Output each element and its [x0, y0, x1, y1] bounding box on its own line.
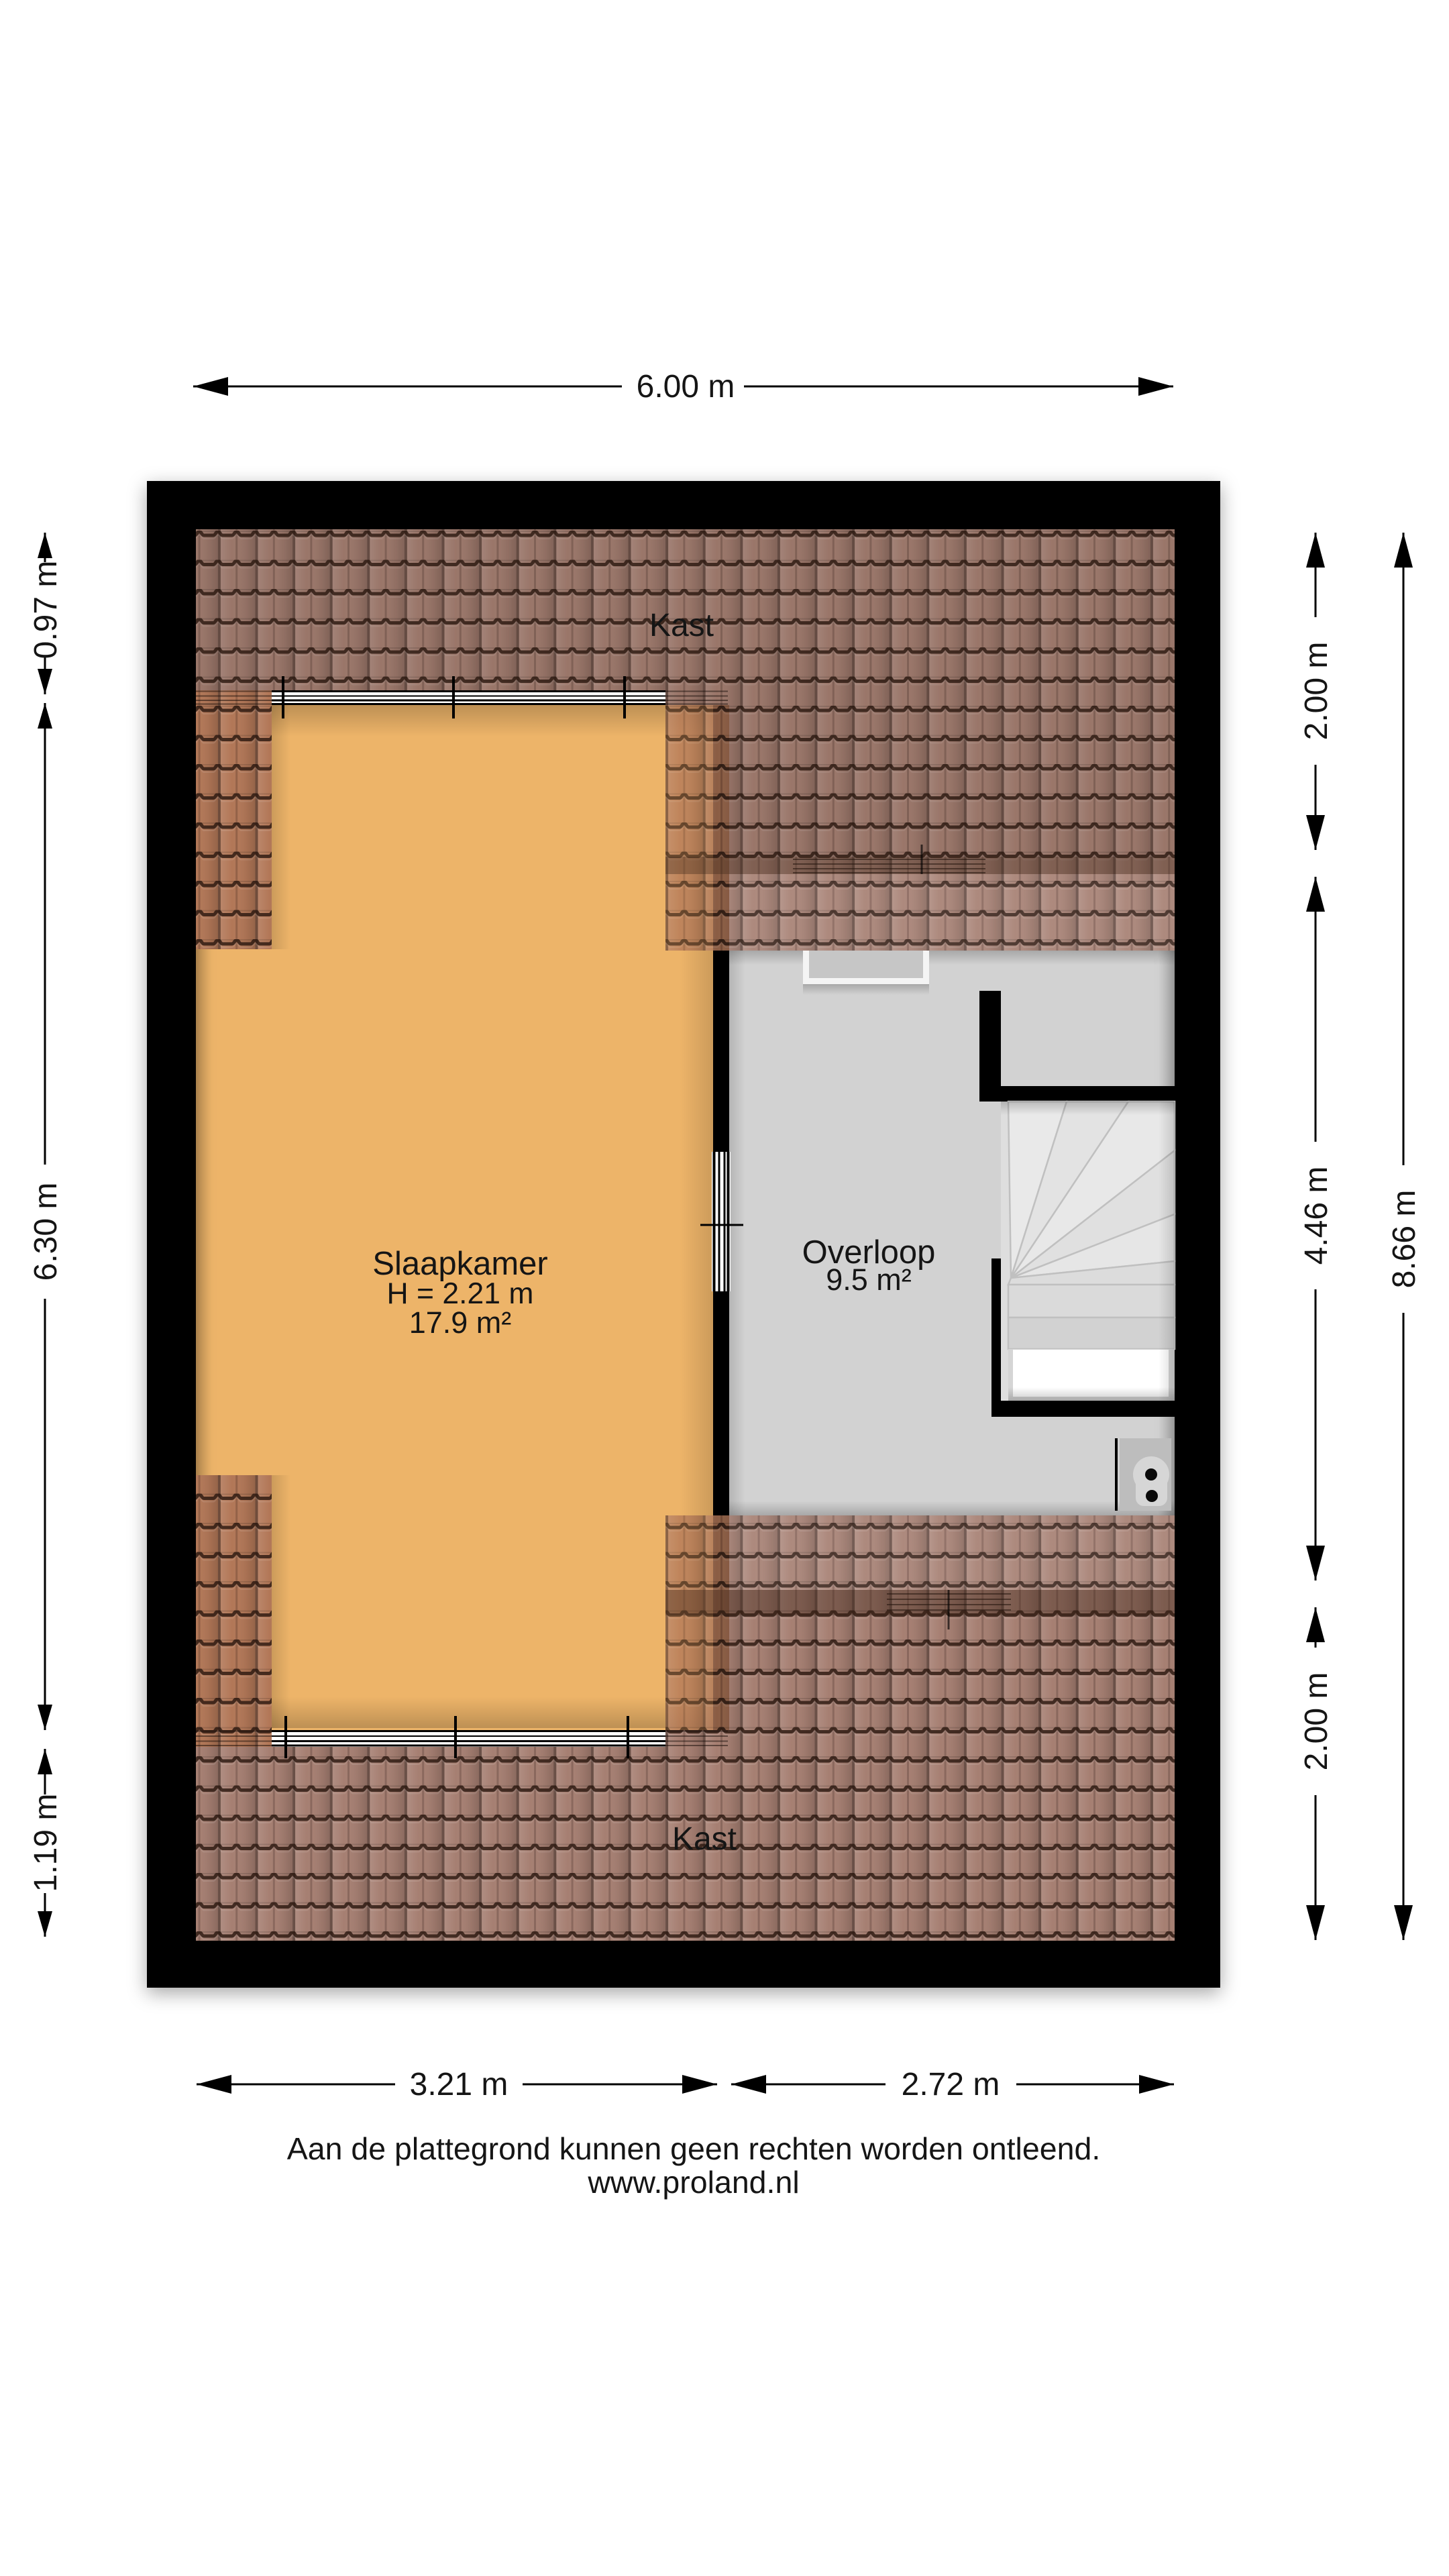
svg-text:Aan de plattegrond kunnen geen: Aan de plattegrond kunnen geen rechten w…	[287, 2131, 1101, 2166]
svg-text:1.19 m: 1.19 m	[28, 1794, 64, 1892]
svg-text:2.00 m: 2.00 m	[1299, 642, 1334, 741]
svg-text:4.46 m: 4.46 m	[1299, 1167, 1334, 1265]
svg-text:6.30 m: 6.30 m	[28, 1183, 64, 1281]
svg-text:2.00 m: 2.00 m	[1299, 1672, 1334, 1771]
svg-text:3.21 m: 3.21 m	[410, 2067, 508, 2102]
svg-text:0.97 m: 0.97 m	[28, 561, 64, 659]
svg-text:Slaapkamer: Slaapkamer	[372, 1246, 547, 1282]
svg-text:9.5 m²: 9.5 m²	[826, 1263, 912, 1297]
svg-text:6.00 m: 6.00 m	[637, 369, 735, 405]
svg-text:www.proland.nl: www.proland.nl	[587, 2165, 799, 2200]
svg-text:17.9 m²: 17.9 m²	[409, 1305, 512, 1340]
svg-text:Kast: Kast	[672, 1821, 737, 1857]
svg-text:Kast: Kast	[649, 608, 714, 643]
svg-text:8.66 m: 8.66 m	[1387, 1190, 1422, 1289]
svg-text:2.72 m: 2.72 m	[902, 2067, 1000, 2102]
